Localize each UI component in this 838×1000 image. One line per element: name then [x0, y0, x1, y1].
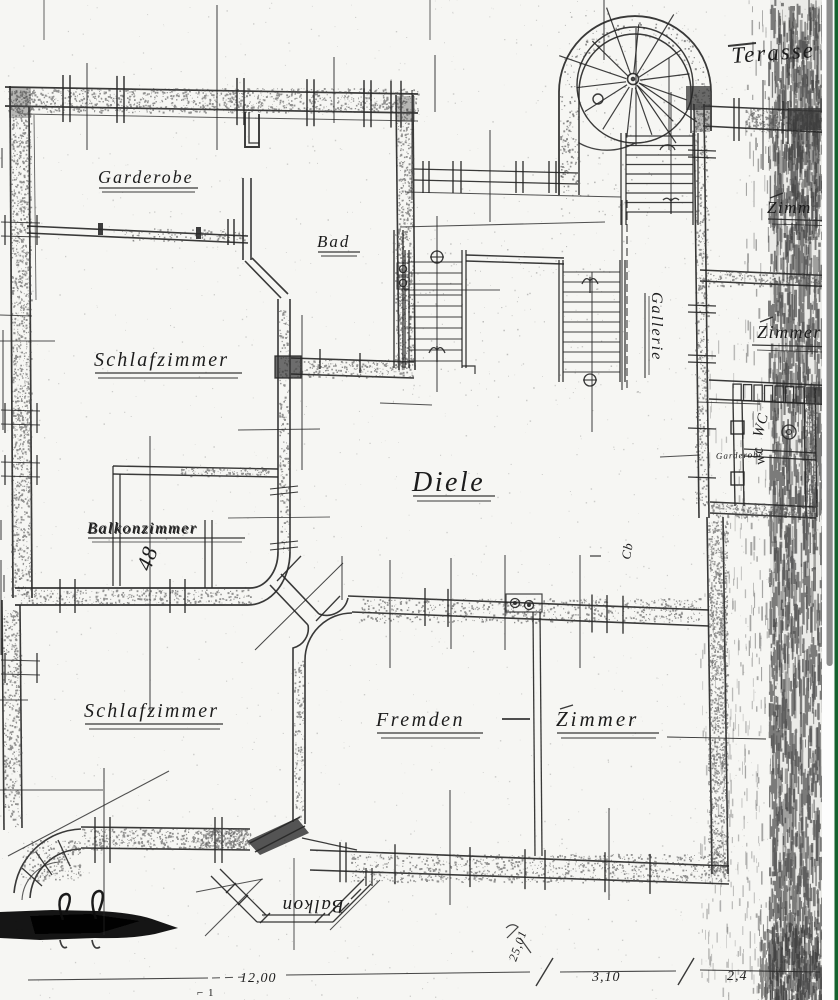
- svg-text:Balkonzimmer: Balkonzimmer: [87, 520, 197, 537]
- svg-text:Cb: Cb: [618, 541, 636, 561]
- svg-text:Bad: Bad: [317, 232, 350, 251]
- svg-text:48: 48: [131, 543, 163, 574]
- svg-text:Zimmer: Zimmer: [757, 322, 822, 342]
- svg-text:Garderobe: Garderobe: [716, 449, 764, 461]
- svg-text:Balkon: Balkon: [281, 895, 344, 916]
- svg-text:Zimmer: Zimmer: [556, 707, 639, 731]
- svg-text:⌐ 1: ⌐ 1: [197, 987, 214, 999]
- svg-text:Diele: Diele: [411, 467, 485, 498]
- svg-text:Schlafzimmer: Schlafzimmer: [84, 700, 219, 722]
- svg-text:Fremden: Fremden: [375, 709, 465, 731]
- svg-text:Schlafzimmer: Schlafzimmer: [94, 349, 229, 371]
- svg-text:Garderobe: Garderobe: [98, 167, 194, 187]
- svg-text:2,4: 2,4: [727, 969, 748, 984]
- svg-text:12,00: 12,00: [240, 971, 277, 986]
- svg-text:Gallerie: Gallerie: [648, 292, 665, 361]
- svg-text:Zimm: Zimm: [767, 198, 812, 217]
- svg-text:3,10: 3,10: [591, 970, 621, 985]
